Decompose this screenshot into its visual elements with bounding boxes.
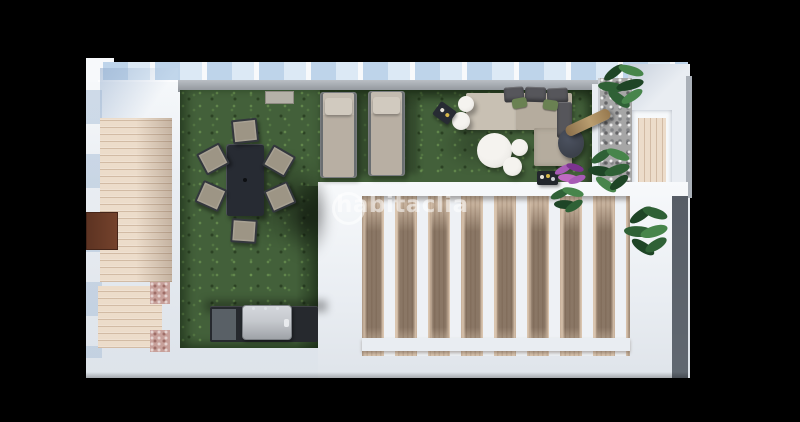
pergola-slats (362, 196, 630, 356)
deck-shadow (100, 118, 172, 282)
watermark: habitaclia (336, 192, 469, 219)
bbq-knob (276, 307, 279, 310)
coffee-table-small-1 (511, 139, 528, 156)
dining-table (226, 144, 264, 216)
cup (540, 175, 544, 179)
coffee-table-small-2 (503, 157, 522, 176)
right-edge-face (686, 76, 692, 198)
pergola-cross-beam (362, 338, 630, 351)
stairwell (100, 68, 178, 118)
wood-deck-upper (100, 118, 172, 282)
grill-handle (284, 319, 289, 327)
lounger-shadow-2 (404, 98, 418, 174)
dining-chair-top (231, 118, 259, 145)
lounger-pillow (373, 97, 400, 114)
storage-cabinet (86, 212, 118, 250)
dining-chair-bottom (230, 218, 258, 244)
side-wall-shadow (672, 196, 688, 378)
tile-patch-lower (150, 330, 170, 352)
green-pillow-2 (542, 99, 558, 111)
bbq-grill (242, 305, 292, 340)
terrace-render: habitaclia (0, 0, 800, 422)
right-room-wood-floor (638, 118, 666, 188)
pergola-slat-shadow (362, 196, 630, 356)
sun-lounger-2 (368, 91, 405, 176)
plant-middle (588, 150, 632, 198)
umbrella-hole (243, 178, 247, 182)
tile-patch-upper (150, 282, 170, 304)
plant-green-corner (548, 188, 588, 218)
bbq-knob (264, 307, 267, 310)
pouf-1 (458, 96, 474, 112)
plant-bottom (624, 206, 670, 262)
lounger-pillow (325, 98, 352, 115)
planter-box (265, 91, 294, 104)
bbq-counter-left (212, 309, 236, 340)
cup (546, 174, 550, 178)
bbq-knob (252, 307, 255, 310)
bottom-edge-fade (86, 372, 688, 380)
sun-lounger-1 (320, 92, 357, 178)
cup (439, 107, 445, 113)
cup (445, 112, 451, 118)
plant-top (598, 66, 646, 112)
